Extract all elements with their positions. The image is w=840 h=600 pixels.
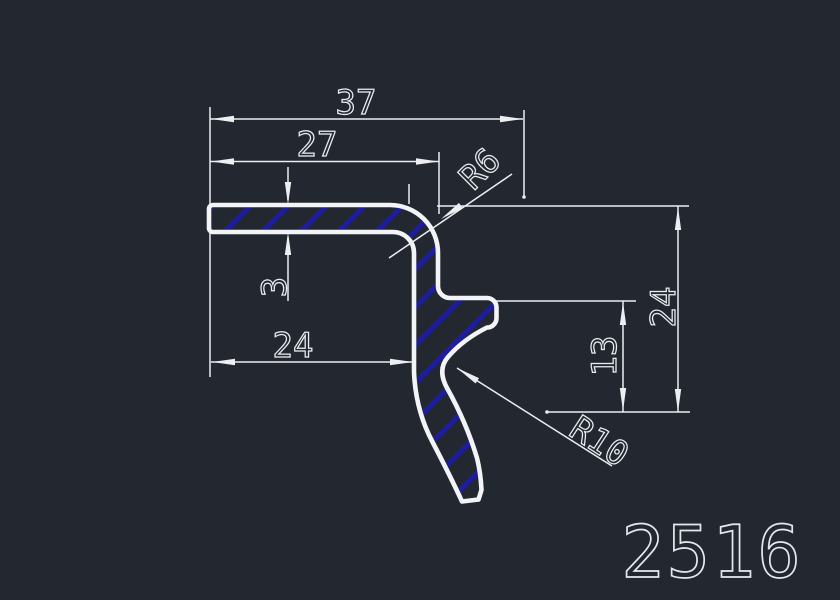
- dim-label-hook-height: 13: [585, 336, 625, 377]
- cad-drawing-viewport: 37 27 3 24: [0, 0, 840, 600]
- dim-label-leg-length: 24: [273, 326, 314, 366]
- dim-label-top-arm: 27: [297, 125, 338, 165]
- extension-end-dot: [545, 410, 549, 414]
- part-number-label: 2516: [621, 510, 802, 594]
- extension-end-dot: [522, 195, 526, 199]
- dim-label-thickness: 3: [255, 277, 295, 297]
- dim-label-overall-height: 24: [644, 287, 684, 328]
- cad-drawing-canvas: 37 27 3 24: [0, 0, 840, 600]
- dim-label-overall-width: 37: [336, 83, 377, 123]
